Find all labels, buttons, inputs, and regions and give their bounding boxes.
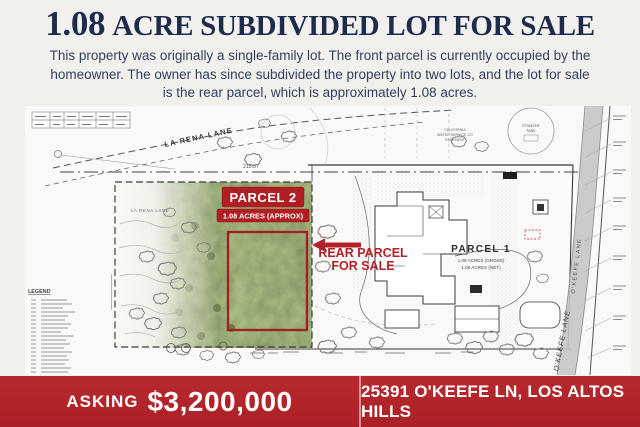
parcel2-label: PARCEL 2 (229, 190, 296, 205)
asking-price-section: ASKING $3,200,000 (0, 376, 359, 427)
svg-text:TANK: TANK (526, 129, 536, 133)
intro-text: This property was originally a single-fa… (48, 47, 592, 103)
callout-line2: FOR SALE (331, 259, 394, 273)
site-plan-map: LA RENA LANE 218.37 (25, 106, 631, 375)
property-address: 25391 O'KEEFE LN, LOS ALTOS HILLS (361, 376, 640, 427)
bottom-banner: ASKING $3,200,000 25391 O'KEEFE LN, LOS … (0, 376, 640, 427)
rotated-dimension-mark (111, 274, 112, 310)
svg-text:WATER SERVICE CO: WATER SERVICE CO (437, 133, 473, 137)
asking-price: $3,200,000 (147, 386, 292, 418)
page-title: 1.08ACRE SUBDIVIDED LOT FOR SALE (0, 4, 640, 44)
parcel2-label-group: PARCEL 2 1.08 ACRES (APPROX) (217, 187, 309, 222)
parcel2-area-label: 1.08 ACRES (APPROX) (223, 212, 304, 221)
parcel1-label: PARCEL 1 (451, 244, 511, 255)
street-label-la-rena-lane-inner: LA RENA LANE (131, 208, 169, 213)
parcel1-area-gross: 1.08 ACRES (GROSS) (458, 258, 505, 263)
parcel1-area-net: 1.00 ACRES (NET) (461, 265, 501, 270)
survey-data-table (32, 112, 130, 128)
legend-title: LEGEND (28, 289, 51, 295)
asking-label: ASKING (66, 392, 138, 412)
svg-text:CALIFORNIA: CALIFORNIA (444, 128, 466, 132)
title-lead: 1.08 (45, 4, 105, 43)
flyer-page: 1.08ACRE SUBDIVIDED LOT FOR SALE This pr… (0, 0, 640, 427)
callout-line1: REAR PARCEL (318, 246, 408, 260)
title-rest: ACRE SUBDIVIDED LOT FOR SALE (112, 10, 595, 42)
svg-text:EASEMENT: EASEMENT (445, 138, 466, 142)
svg-text:ETWATER: ETWATER (522, 124, 540, 128)
